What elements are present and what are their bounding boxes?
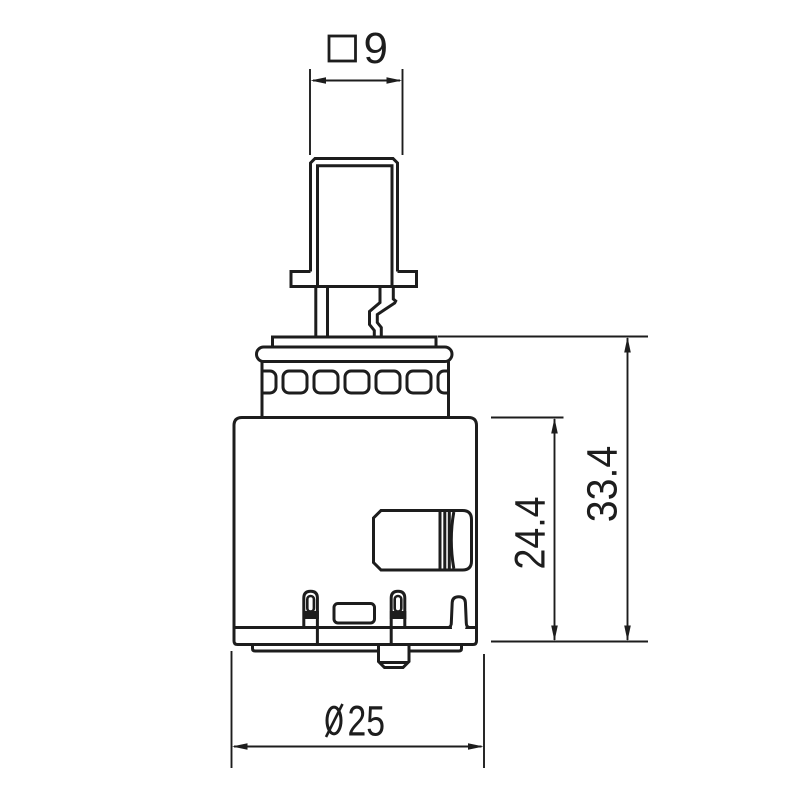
svg-text:25: 25 [348, 698, 386, 746]
svg-text:24.4: 24.4 [507, 497, 555, 570]
svg-text:9: 9 [364, 24, 388, 73]
svg-text:33.4: 33.4 [579, 446, 627, 523]
